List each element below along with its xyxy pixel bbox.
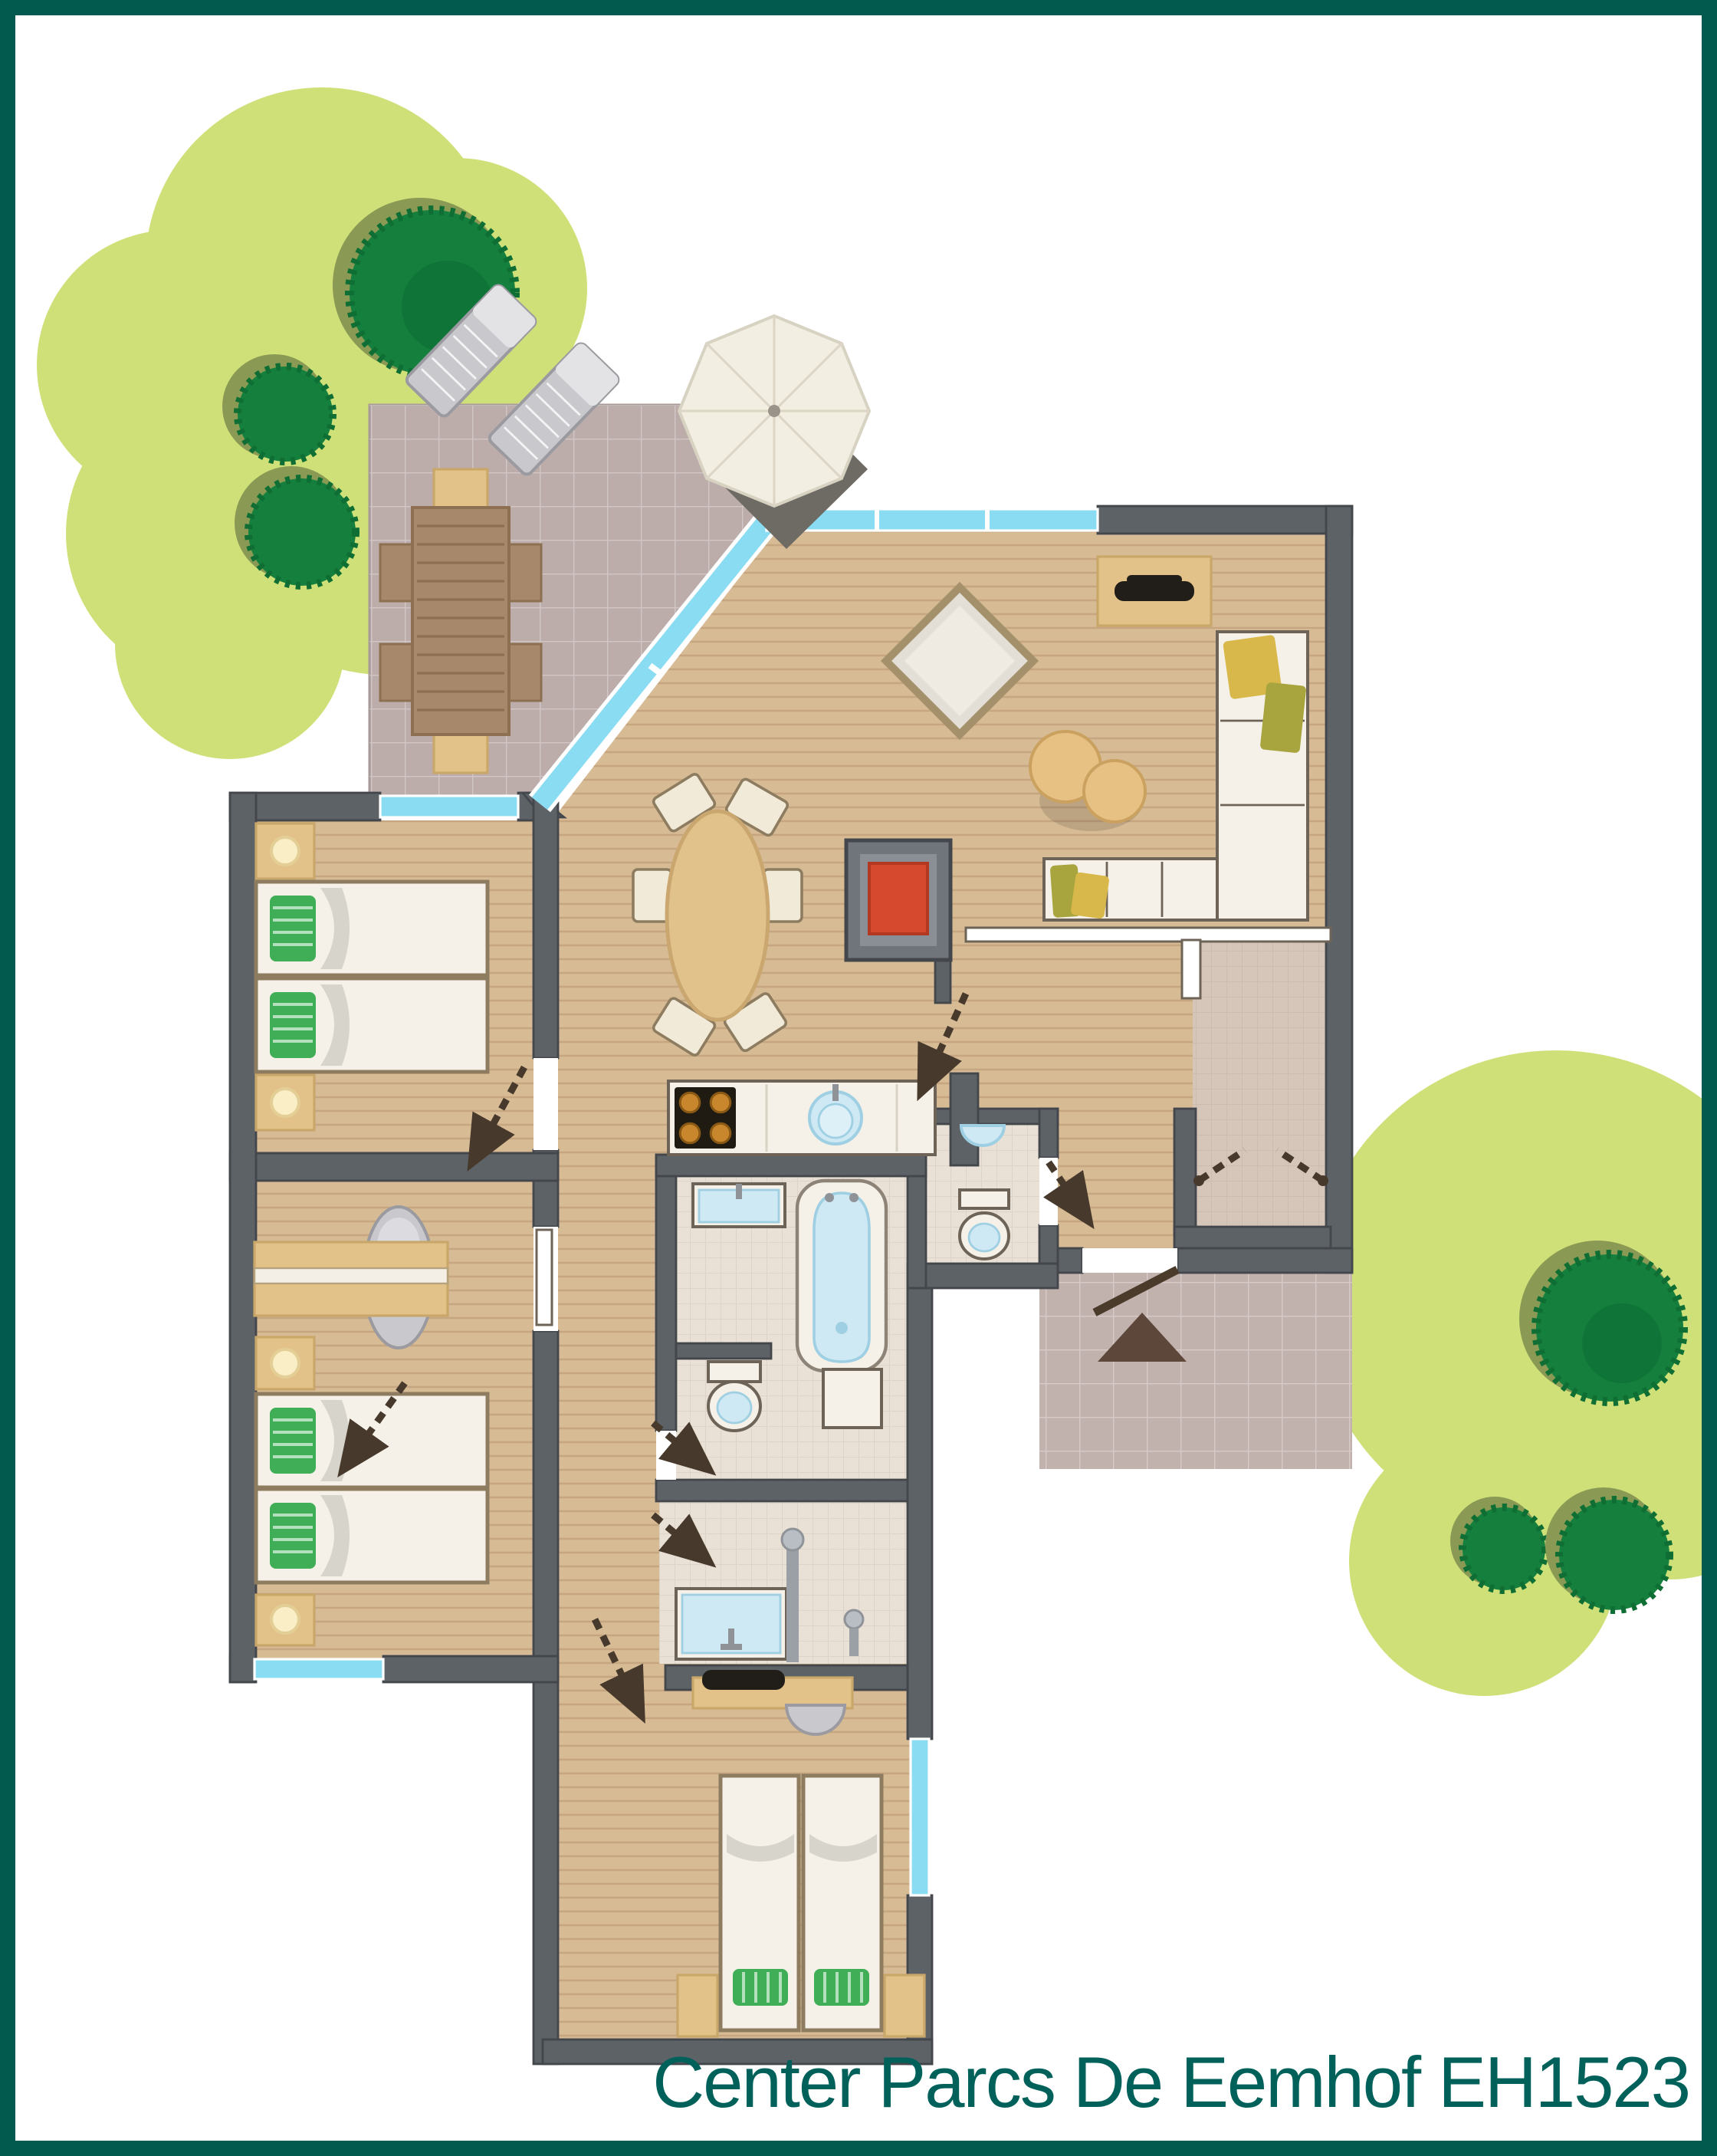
window-bedroom2 xyxy=(254,1659,383,1679)
single-bed xyxy=(256,1489,488,1582)
kitchen xyxy=(668,1081,935,1155)
door-leaf xyxy=(537,1230,552,1325)
window-bedroom1 xyxy=(380,796,518,817)
tv-cabinet xyxy=(1098,557,1211,626)
garden-right xyxy=(1311,1050,1717,1696)
single-bed xyxy=(256,1394,488,1487)
caption-title: Center Parcs De Eemhof EH1523 xyxy=(652,2042,1689,2122)
lamp-icon xyxy=(271,1349,299,1377)
single-bed xyxy=(803,1776,881,2030)
single-bed xyxy=(256,882,488,975)
lamp-icon xyxy=(271,1089,299,1116)
single-bed xyxy=(721,1776,799,2030)
shower-column-icon xyxy=(786,1533,799,1662)
floorplan-page: Center Parcs De Eemhof EH1523 xyxy=(0,0,1717,2156)
wood-stove xyxy=(846,840,950,960)
hall-partition xyxy=(966,928,1331,942)
lamp-icon xyxy=(271,1605,299,1633)
nightstand xyxy=(885,1975,924,2036)
tv-icon xyxy=(702,1670,785,1690)
toilet-icon xyxy=(708,1362,760,1431)
dining-table xyxy=(667,811,768,1020)
lamp-icon xyxy=(271,837,299,865)
window-bedroom3 xyxy=(911,1739,929,1895)
nightstand xyxy=(678,1975,717,2036)
entrance-path xyxy=(1039,1273,1352,1469)
floorplan-drawing: Center Parcs De Eemhof EH1523 xyxy=(0,0,1717,2156)
single-bed xyxy=(256,978,488,1072)
vanity-sink xyxy=(693,1184,785,1227)
bathtub xyxy=(797,1181,886,1371)
patio-table xyxy=(412,508,509,735)
bath-shelf xyxy=(823,1369,881,1428)
